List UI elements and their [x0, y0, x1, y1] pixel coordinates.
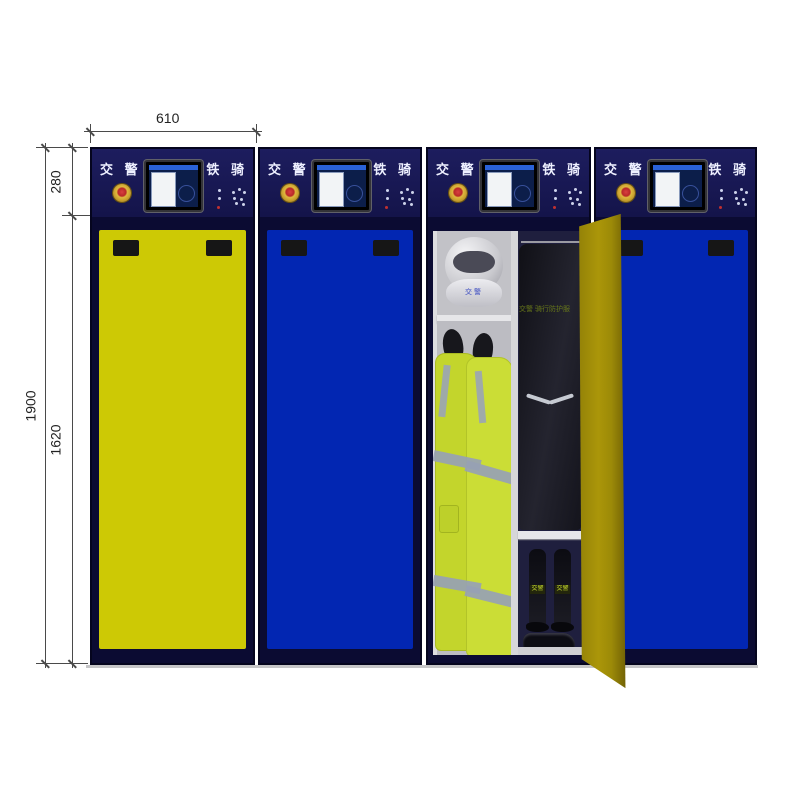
- cabinet-1-header: 交 警 铁 骑: [92, 149, 253, 220]
- dimension-label-width: 610: [156, 110, 179, 126]
- speaker-grille-icon: [734, 191, 737, 194]
- header-left-label: 交 警: [268, 159, 310, 178]
- cabinet-3-interior: 交警: [433, 231, 584, 655]
- dimension-label-total-height: 1900: [23, 390, 39, 421]
- dimension-label-body-height: 1620: [48, 424, 64, 455]
- screen-window: [319, 172, 344, 207]
- header-left-label: 交 警: [100, 159, 142, 178]
- cabinet-3-body: 交警: [428, 217, 589, 663]
- police-badge-icon: [281, 184, 299, 202]
- speaker-grille-icon: [400, 191, 403, 194]
- door-vent: [206, 240, 232, 256]
- riding-boot: 交警: [529, 549, 546, 629]
- extension-line: [36, 663, 88, 664]
- screen-emblem-icon: [514, 185, 531, 202]
- touchscreen-display: [653, 165, 702, 207]
- black-riding-jackets: [519, 244, 581, 530]
- cabinet-2: 交 警 铁 骑: [258, 147, 422, 665]
- screen-titlebar: [653, 165, 702, 170]
- indicator-dot: [554, 197, 557, 200]
- cabinet-1-door[interactable]: [99, 230, 246, 649]
- dimension-line-sections: [72, 143, 73, 668]
- screen-window: [655, 172, 680, 207]
- touchscreen[interactable]: [312, 160, 371, 212]
- speaker-grille-icon: [568, 191, 571, 194]
- screen-emblem-icon: [682, 185, 699, 202]
- helmet-compartment: 交警: [437, 231, 511, 321]
- boots-shelf: [518, 531, 584, 539]
- screen-window: [487, 172, 512, 207]
- header-right-label: 铁 骑: [206, 159, 248, 178]
- door-vent: [113, 240, 139, 256]
- dimension-line-width: [84, 131, 262, 132]
- hivis-suit: [466, 357, 513, 655]
- hivis-rain-suits: [433, 327, 517, 651]
- screen-emblem-icon: [346, 185, 363, 202]
- cabinet-2-body: [260, 217, 420, 663]
- cabinet-3-open-door[interactable]: [575, 210, 627, 692]
- indicator-dot: [386, 197, 389, 200]
- indicator-dot-red: [553, 206, 556, 209]
- boot-foot: [551, 622, 574, 632]
- center-divider-wall: [511, 231, 518, 655]
- header-right-label: 铁 骑: [373, 159, 415, 178]
- screen-emblem-icon: [178, 185, 195, 202]
- screen-window: [151, 172, 176, 207]
- indicator-dot-red: [719, 206, 722, 209]
- indicator-dot: [218, 189, 221, 192]
- police-badge-icon: [449, 184, 467, 202]
- garment-label: 交警 骑行防护服: [519, 305, 583, 314]
- extension-line: [62, 215, 90, 216]
- cabinet-4-door[interactable]: [603, 230, 748, 649]
- cabinet-1: 交 警 铁 骑: [90, 147, 255, 665]
- header-right-label: 铁 骑: [708, 159, 750, 178]
- cabinet-2-door[interactable]: [267, 230, 413, 649]
- boot-label: 交警: [530, 585, 545, 594]
- indicator-dot-red: [385, 206, 388, 209]
- interior-floor: [518, 647, 584, 655]
- touchscreen-display: [317, 165, 366, 207]
- speaker-grille-icon: [232, 191, 235, 194]
- product-diagram: 610 1900 280 1620 交 警 铁 骑: [0, 0, 800, 800]
- screen-titlebar: [149, 165, 198, 170]
- cabinet-3-header: 交 警 铁 骑: [428, 149, 589, 220]
- door-vent: [708, 240, 734, 256]
- indicator-dot: [720, 197, 723, 200]
- police-badge-icon: [617, 184, 635, 202]
- boot-foot: [526, 622, 549, 632]
- indicator-dot-red: [217, 206, 220, 209]
- header-left-label: 交 警: [436, 159, 478, 178]
- indicator-dot: [218, 197, 221, 200]
- police-helmet: 交警: [445, 237, 503, 313]
- cabinet-3: 交 警 铁 骑: [426, 147, 591, 665]
- screen-titlebar: [485, 165, 534, 170]
- door-vent: [281, 240, 307, 256]
- indicator-dot: [720, 189, 723, 192]
- suit-pocket: [439, 505, 459, 533]
- header-left-label: 交 警: [604, 159, 646, 178]
- indicator-dot: [554, 189, 557, 192]
- indicator-dot: [386, 189, 389, 192]
- helmet-label: 交警: [446, 279, 502, 307]
- extension-line: [36, 147, 88, 148]
- door-vent: [373, 240, 399, 256]
- hanging-rod: [521, 241, 581, 243]
- riding-boot: 交警: [554, 549, 571, 629]
- cabinet-4-header: 交 警 铁 骑: [596, 149, 755, 220]
- cabinet-2-header: 交 警 铁 骑: [260, 149, 420, 220]
- touchscreen[interactable]: [480, 160, 539, 212]
- cabinet-1-body: [92, 217, 253, 663]
- touchscreen-display: [149, 165, 198, 207]
- touchscreen[interactable]: [144, 160, 203, 212]
- header-right-label: 铁 骑: [542, 159, 584, 178]
- helmet-visor: [453, 251, 495, 273]
- police-badge-icon: [113, 184, 131, 202]
- boot-label: 交警: [555, 585, 570, 594]
- floor-shadow: [86, 665, 758, 668]
- touchscreen-display: [485, 165, 534, 207]
- dimension-line-total-height: [45, 143, 46, 668]
- dimension-label-header-height: 280: [48, 170, 64, 193]
- screen-titlebar: [317, 165, 366, 170]
- touchscreen[interactable]: [648, 160, 707, 212]
